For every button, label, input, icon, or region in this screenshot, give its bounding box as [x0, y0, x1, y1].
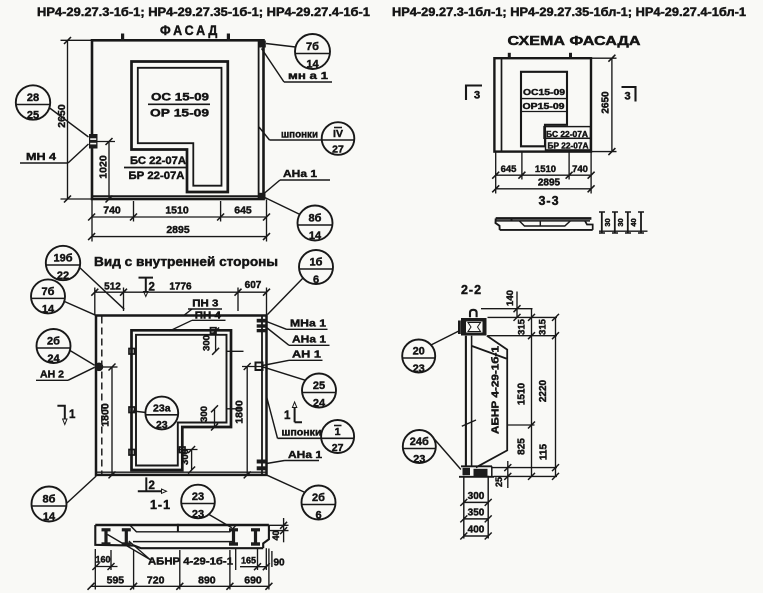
svg-text:20: 20: [413, 346, 425, 358]
svg-text:22: 22: [57, 270, 69, 282]
svg-text:2б: 2б: [47, 336, 60, 348]
svg-text:2б: 2б: [312, 492, 325, 504]
svg-text:МНа 1: МНа 1: [290, 318, 326, 330]
svg-text:607: 607: [245, 280, 262, 291]
svg-text:1: 1: [69, 409, 76, 421]
svg-text:НР4-29.27.3-1б-1; НР4-29.27.35: НР4-29.27.3-1б-1; НР4-29.27.35-1б-1; НР4…: [37, 7, 371, 19]
svg-text:23а: 23а: [153, 403, 171, 415]
svg-text:3: 3: [625, 91, 631, 103]
svg-text:2: 2: [149, 480, 155, 492]
svg-text:2220: 2220: [538, 379, 549, 402]
svg-text:1800: 1800: [100, 403, 112, 427]
svg-text:3: 3: [474, 90, 480, 102]
svg-text:2-2: 2-2: [461, 283, 482, 297]
svg-text:740: 740: [572, 164, 588, 175]
svg-text:ПН 3: ПН 3: [192, 299, 219, 310]
svg-text:30: 30: [603, 218, 612, 226]
svg-text:3-3: 3-3: [538, 194, 559, 208]
svg-text:512: 512: [104, 282, 121, 293]
svg-text:1510: 1510: [165, 205, 189, 217]
svg-text:300: 300: [199, 406, 210, 422]
svg-text:24: 24: [313, 398, 326, 410]
svg-text:БР 22-07А: БР 22-07А: [129, 170, 185, 182]
svg-text:АНа 1: АНа 1: [288, 449, 322, 461]
svg-text:14: 14: [306, 59, 319, 71]
svg-text:ОС15-09: ОС15-09: [523, 87, 565, 97]
svg-text:МН 4: МН 4: [26, 151, 56, 163]
svg-text:23: 23: [413, 454, 425, 466]
svg-text:1776: 1776: [169, 282, 192, 293]
svg-text:19б: 19б: [53, 253, 72, 265]
svg-text:315: 315: [538, 318, 549, 335]
svg-text:СХЕМА ФАСАДА: СХЕМА ФАСАДА: [508, 34, 641, 48]
svg-text:28: 28: [27, 92, 39, 104]
svg-text:90: 90: [274, 558, 286, 569]
svg-text:30: 30: [616, 218, 625, 226]
svg-text:890: 890: [198, 575, 216, 587]
svg-text:23: 23: [413, 363, 425, 375]
svg-text:1020: 1020: [98, 155, 110, 179]
svg-text:140: 140: [505, 290, 516, 306]
svg-text:АНа 1: АНа 1: [292, 334, 326, 346]
svg-text:720: 720: [147, 575, 165, 587]
svg-text:шпонки: шпонки: [281, 129, 318, 141]
svg-text:6: 6: [313, 274, 319, 286]
svg-text:645: 645: [234, 205, 252, 217]
svg-text:АН 1: АН 1: [292, 349, 321, 361]
svg-text:1800: 1800: [234, 400, 246, 424]
svg-text:БС 22-07А: БС 22-07А: [130, 155, 186, 167]
svg-text:27: 27: [332, 144, 344, 156]
svg-text:АБНР 4-29-1б-1: АБНР 4-29-1б-1: [490, 345, 502, 434]
svg-text:25: 25: [494, 477, 504, 487]
svg-text:400: 400: [468, 525, 485, 536]
svg-text:160: 160: [96, 555, 111, 565]
svg-text:40: 40: [629, 218, 638, 226]
svg-text:2650: 2650: [56, 104, 68, 128]
svg-text:ОР 15-09: ОР 15-09: [150, 108, 209, 120]
svg-text:1510: 1510: [517, 382, 528, 405]
svg-text:1-1: 1-1: [150, 498, 171, 512]
svg-text:ОС 15-09: ОС 15-09: [151, 91, 209, 103]
svg-text:165: 165: [241, 556, 256, 566]
svg-text:24б: 24б: [410, 436, 429, 448]
svg-text:825: 825: [517, 438, 528, 455]
svg-text:IV: IV: [333, 128, 343, 140]
svg-text:300: 300: [468, 491, 485, 502]
svg-text:2895: 2895: [166, 224, 190, 236]
svg-text:115: 115: [539, 443, 550, 460]
svg-text:8б: 8б: [43, 494, 56, 506]
svg-text:645: 645: [501, 164, 518, 175]
svg-text:1: 1: [335, 426, 341, 438]
svg-text:315: 315: [517, 318, 528, 335]
svg-text:24: 24: [47, 353, 60, 365]
svg-text:40: 40: [271, 530, 281, 540]
svg-text:НР4-29.27.3-1бл-1; НР4-29.27.3: НР4-29.27.3-1бл-1; НР4-29.27.35-1бл-1; Н…: [392, 7, 747, 19]
svg-text:2: 2: [149, 282, 155, 294]
svg-text:1б: 1б: [310, 257, 323, 269]
svg-text:14: 14: [309, 230, 322, 242]
svg-text:8б: 8б: [309, 213, 322, 225]
svg-text:Вид с внутренней стороны: Вид с внутренней стороны: [94, 255, 278, 269]
svg-text:БР 22-07А: БР 22-07А: [548, 140, 589, 150]
svg-text:1510: 1510: [535, 164, 556, 175]
svg-text:2650: 2650: [601, 91, 612, 114]
svg-text:23: 23: [192, 491, 204, 503]
svg-text:23: 23: [192, 509, 204, 521]
svg-text:14: 14: [42, 304, 55, 316]
svg-text:6: 6: [315, 510, 321, 522]
svg-text:шпонки: шпонки: [282, 427, 322, 439]
svg-text:ОР15-09: ОР15-09: [523, 101, 565, 111]
svg-text:БС 22-07А: БС 22-07А: [546, 129, 588, 139]
svg-text:АНа 1: АНа 1: [283, 168, 317, 180]
svg-text:23: 23: [156, 419, 168, 431]
svg-text:350: 350: [468, 508, 485, 519]
svg-text:25: 25: [27, 110, 39, 122]
svg-text:ФАСАД: ФАСАД: [160, 23, 220, 38]
svg-text:25: 25: [313, 380, 325, 392]
svg-text:АН 2: АН 2: [40, 369, 64, 381]
svg-text:14: 14: [43, 511, 56, 523]
svg-text:мн а 1: мн а 1: [288, 70, 328, 82]
svg-text:АБНР 4-29-1б-1: АБНР 4-29-1б-1: [148, 556, 233, 568]
svg-text:690: 690: [244, 575, 262, 587]
svg-text:27: 27: [332, 442, 344, 454]
svg-text:300: 300: [202, 335, 213, 351]
svg-text:595: 595: [107, 575, 125, 587]
svg-text:300: 300: [180, 449, 191, 465]
svg-text:1: 1: [284, 410, 291, 422]
svg-text:7б: 7б: [306, 41, 319, 53]
svg-text:2895: 2895: [538, 178, 561, 189]
svg-text:740: 740: [103, 205, 121, 217]
svg-text:7б: 7б: [42, 286, 55, 298]
